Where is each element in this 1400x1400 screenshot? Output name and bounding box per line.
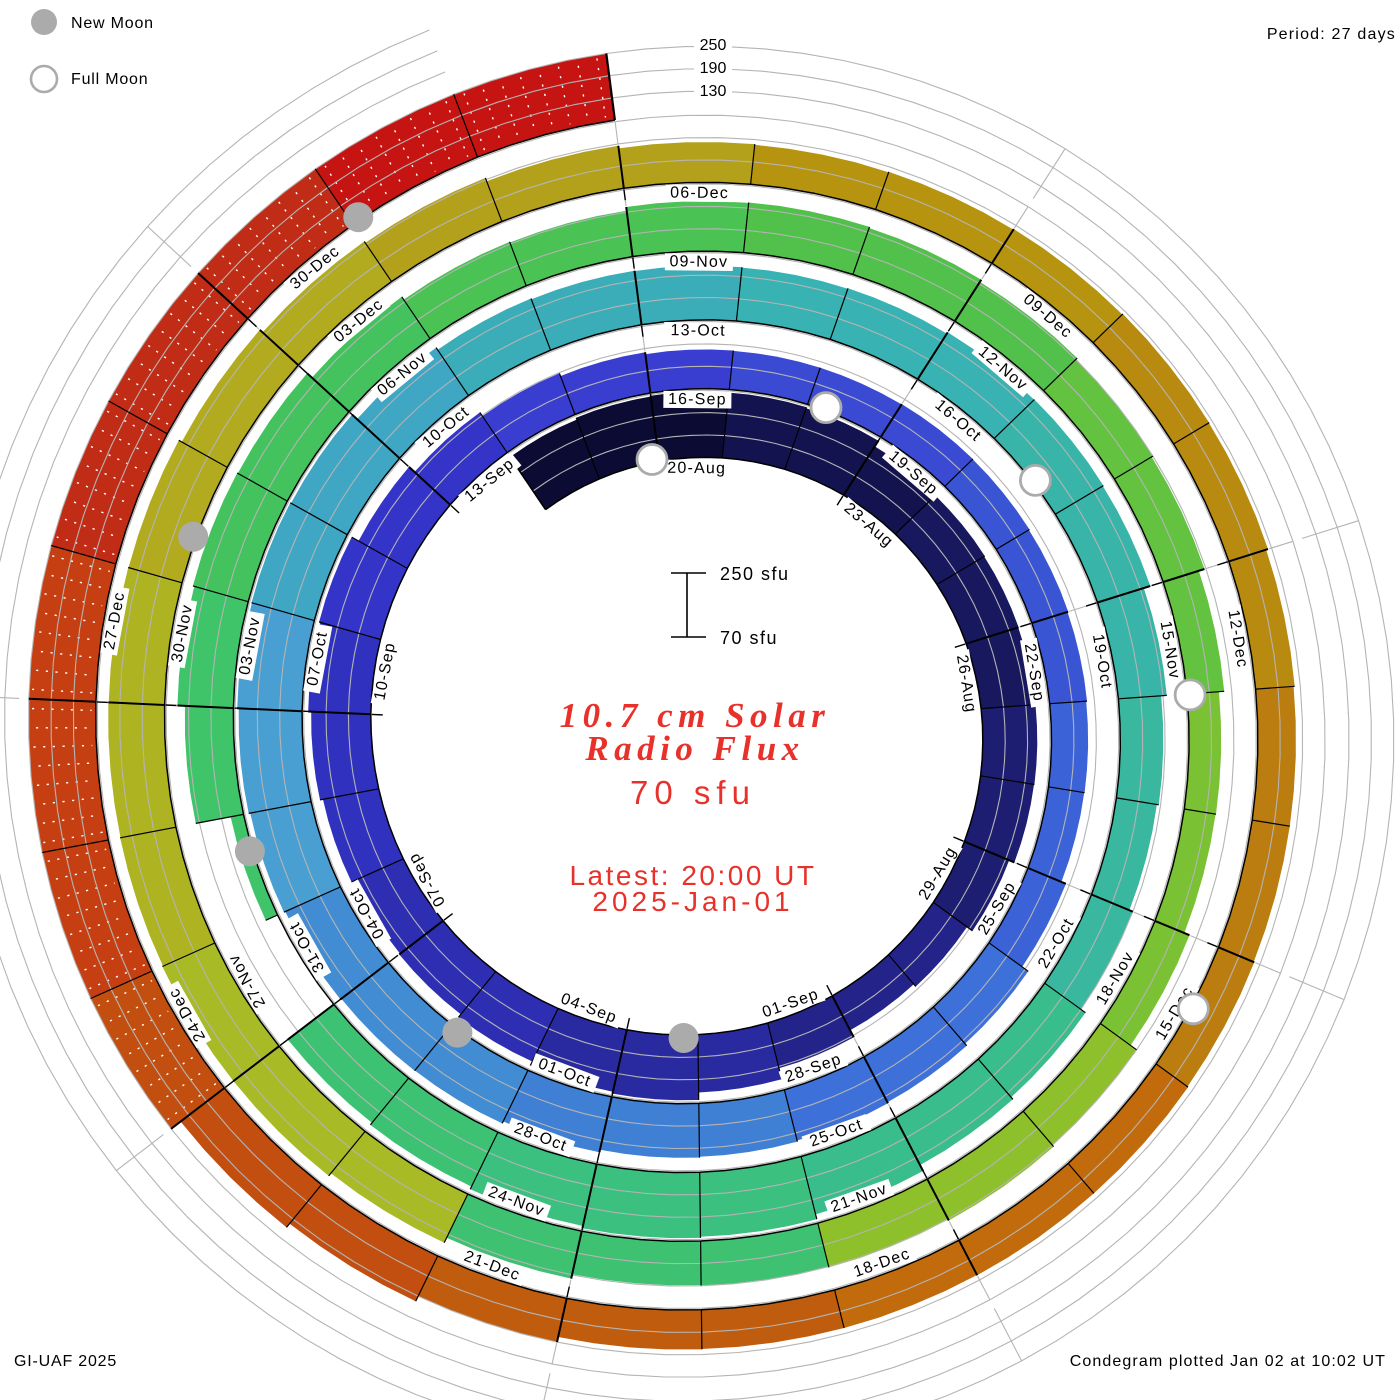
svg-text:13-Oct: 13-Oct	[671, 322, 726, 340]
svg-text:70 sfu: 70 sfu	[630, 774, 756, 811]
svg-text:2025-Jan-01: 2025-Jan-01	[592, 886, 793, 917]
svg-text:16-Sep: 16-Sep	[668, 391, 727, 409]
svg-text:250: 250	[700, 37, 727, 54]
svg-text:20-Aug: 20-Aug	[667, 460, 726, 478]
svg-text:Period: 27 days: Period: 27 days	[1267, 26, 1396, 43]
svg-text:70 sfu: 70 sfu	[720, 628, 778, 648]
svg-text:250 sfu: 250 sfu	[720, 564, 790, 584]
svg-text:Condegram plotted Jan 02 at 10: Condegram plotted Jan 02 at 10:02 UT	[1070, 1353, 1386, 1370]
svg-text:GI-UAF 2025: GI-UAF 2025	[14, 1353, 117, 1370]
svg-text:06-Dec: 06-Dec	[670, 184, 729, 202]
svg-text:190: 190	[700, 60, 727, 77]
svg-text:Full Moon: Full Moon	[71, 71, 148, 88]
svg-text:New Moon: New Moon	[71, 15, 154, 32]
svg-text:130: 130	[700, 83, 727, 100]
svg-text:09-Nov: 09-Nov	[669, 253, 728, 271]
svg-text:Radio Flux: Radio Flux	[584, 729, 804, 768]
